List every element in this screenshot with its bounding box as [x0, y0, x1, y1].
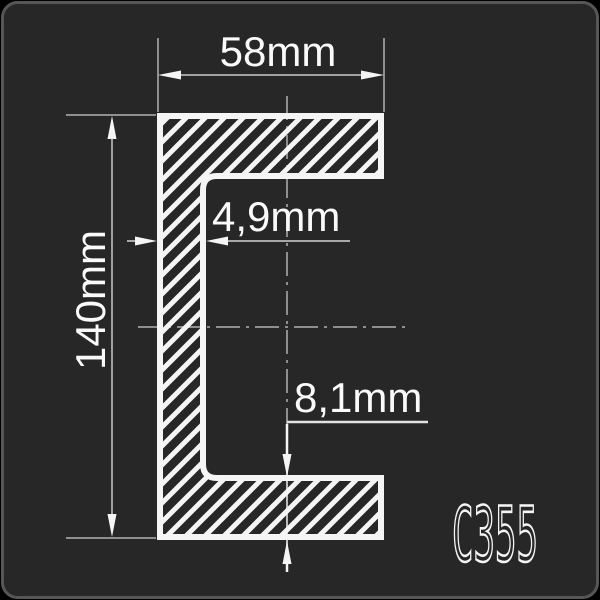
web-thickness-label: 4,9mm [212, 193, 340, 240]
height-dimension-label: 140mm [67, 230, 114, 370]
width-dimension-label: 58mm [220, 28, 337, 75]
channel-section-drawing: 58mm 140mm 4,9mm 8,1mm C355 [0, 0, 600, 600]
drawing-card: 58mm 140mm 4,9mm 8,1mm C355 [0, 0, 600, 600]
steel-grade-badge: C355 [452, 490, 538, 579]
flange-thickness-label: 8,1mm [294, 374, 422, 421]
